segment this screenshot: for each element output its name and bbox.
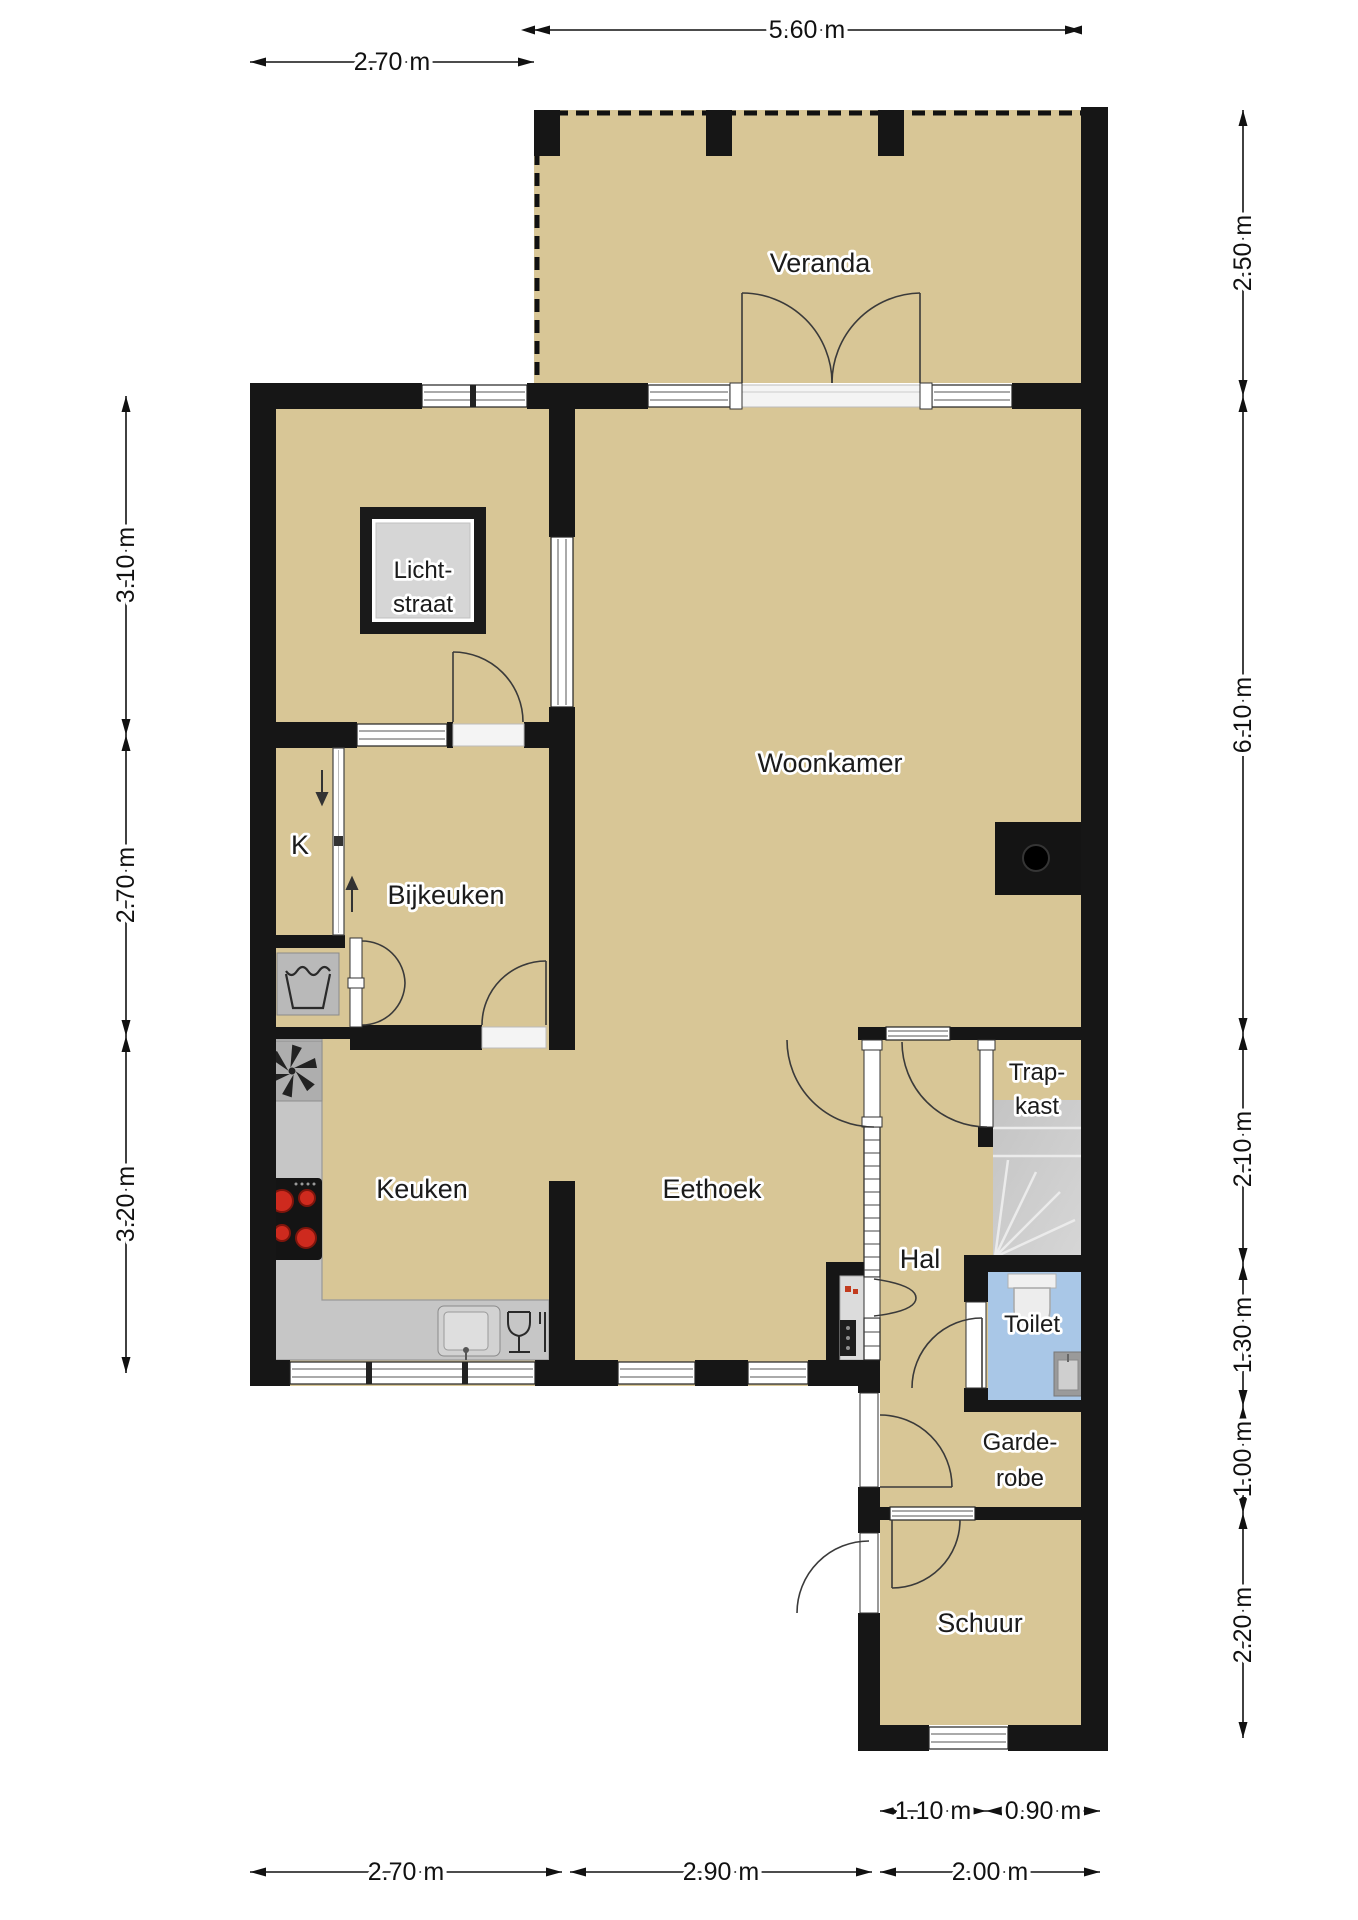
- svg-text:0.90 m: 0.90 m: [1005, 1797, 1081, 1825]
- sink-icon: [438, 1306, 500, 1360]
- room-label-trapkast: kast: [1015, 1093, 1059, 1120]
- window-lichtstraat-bottom: [357, 724, 447, 746]
- hand-basin-icon: [1054, 1352, 1082, 1396]
- svg-text:5.60 m: 5.60 m: [769, 16, 845, 44]
- svg-text:2.70 m: 2.70 m: [368, 1858, 444, 1886]
- room-label-hal: Hal: [900, 1244, 941, 1274]
- window-eethoek-left: [618, 1362, 695, 1384]
- floor-plan: Veranda Licht- straat Woonkamer K Bijkeu…: [0, 0, 1358, 1920]
- dimension-right-1: 6.10 m: [1229, 396, 1257, 1034]
- glass-partition: [864, 1127, 880, 1360]
- floors: [260, 110, 1082, 1725]
- window-lichtstraat-top: [422, 385, 527, 407]
- room-label-bijkeuken: Bijkeuken: [387, 880, 504, 910]
- dimension-right-5: 2.20 m: [1229, 1513, 1257, 1738]
- svg-text:3.10 m: 3.10 m: [112, 527, 140, 603]
- dimension-top-main: 5.60 m: [534, 16, 1081, 44]
- window-keuken: [290, 1362, 535, 1384]
- svg-text:2.50 m: 2.50 m: [1229, 215, 1257, 291]
- veranda-post: [706, 110, 732, 156]
- fireplace-icon: [995, 822, 1082, 895]
- dimension-left-1: 2.70 m: [112, 735, 140, 1036]
- dimension-right-2: 2.10 m: [1229, 1034, 1257, 1264]
- svg-text:2.70 m: 2.70 m: [354, 48, 430, 76]
- svg-text:1.00 m: 1.00 m: [1229, 1421, 1257, 1497]
- dimension-bottom-0: 2.70 m: [250, 1858, 562, 1886]
- room-label-eethoek: Eethoek: [662, 1174, 762, 1204]
- window-hal-transom: [886, 1027, 950, 1040]
- dimension-right-4: 1.00 m: [1229, 1406, 1257, 1513]
- dimension-schuur-split-0: 1.10 m: [880, 1797, 986, 1825]
- svg-text:2.90 m: 2.90 m: [683, 1858, 759, 1886]
- svg-text:3.20 m: 3.20 m: [112, 1166, 140, 1242]
- dimension-bottom-2: 2.00 m: [880, 1858, 1100, 1886]
- window-schuur: [929, 1727, 1008, 1749]
- dimension-schuur-split-1: 0.90 m: [986, 1797, 1100, 1825]
- room-label-keuken: Keuken: [376, 1174, 468, 1204]
- window-woonkamer-top-left: [648, 385, 730, 407]
- dimension-top-left: 2.70 m: [250, 48, 534, 76]
- floor-plan-page: Veranda Licht- straat Woonkamer K Bijkeu…: [0, 0, 1358, 1920]
- veranda-floor: [534, 110, 1081, 383]
- dimension-left-0: 3.10 m: [112, 396, 140, 735]
- window-woonkamer-top-right: [932, 385, 1012, 407]
- room-label-woonkamer: Woonkamer: [757, 748, 902, 778]
- dimension-right-0: 2.50 m: [1229, 110, 1257, 396]
- room-label-lichtstraat: Licht-: [394, 557, 453, 584]
- window-eethoek-right: [748, 1362, 808, 1384]
- window-woonkamer-interior: [551, 537, 573, 707]
- room-label-toilet: Toilet: [1004, 1311, 1060, 1338]
- left-wall: [250, 383, 276, 1386]
- room-label-schuur: Schuur: [937, 1608, 1023, 1638]
- room-label-lichtstraat: straat: [393, 591, 453, 618]
- room-label-kast: K: [291, 830, 309, 860]
- stairs-icon: [993, 1100, 1082, 1257]
- dimension-right-3: 1.30 m: [1229, 1264, 1257, 1406]
- veranda-door-opening: [730, 383, 932, 409]
- veranda-post: [878, 110, 904, 156]
- room-label-veranda: Veranda: [770, 248, 872, 278]
- svg-text:2.10 m: 2.10 m: [1229, 1111, 1257, 1187]
- svg-text:2.20 m: 2.20 m: [1229, 1587, 1257, 1663]
- svg-text:6.10 m: 6.10 m: [1229, 677, 1257, 753]
- room-label-garderobe: robe: [996, 1465, 1044, 1492]
- right-wall: [1081, 107, 1108, 1751]
- svg-text:1.30 m: 1.30 m: [1229, 1297, 1257, 1373]
- room-label-garderobe: Garde-: [983, 1429, 1058, 1456]
- dimension-bottom-1: 2.90 m: [570, 1858, 872, 1886]
- room-label-trapkast: Trap-: [1009, 1059, 1065, 1086]
- svg-text:2.00 m: 2.00 m: [952, 1858, 1028, 1886]
- svg-text:1.10 m: 1.10 m: [895, 1797, 971, 1825]
- veranda-post: [534, 110, 560, 156]
- svg-text:2.70 m: 2.70 m: [112, 847, 140, 923]
- dimension-left-2: 3.20 m: [112, 1036, 140, 1373]
- washing-machine-icon: [277, 953, 339, 1015]
- schuur-exterior-door: [797, 1533, 878, 1613]
